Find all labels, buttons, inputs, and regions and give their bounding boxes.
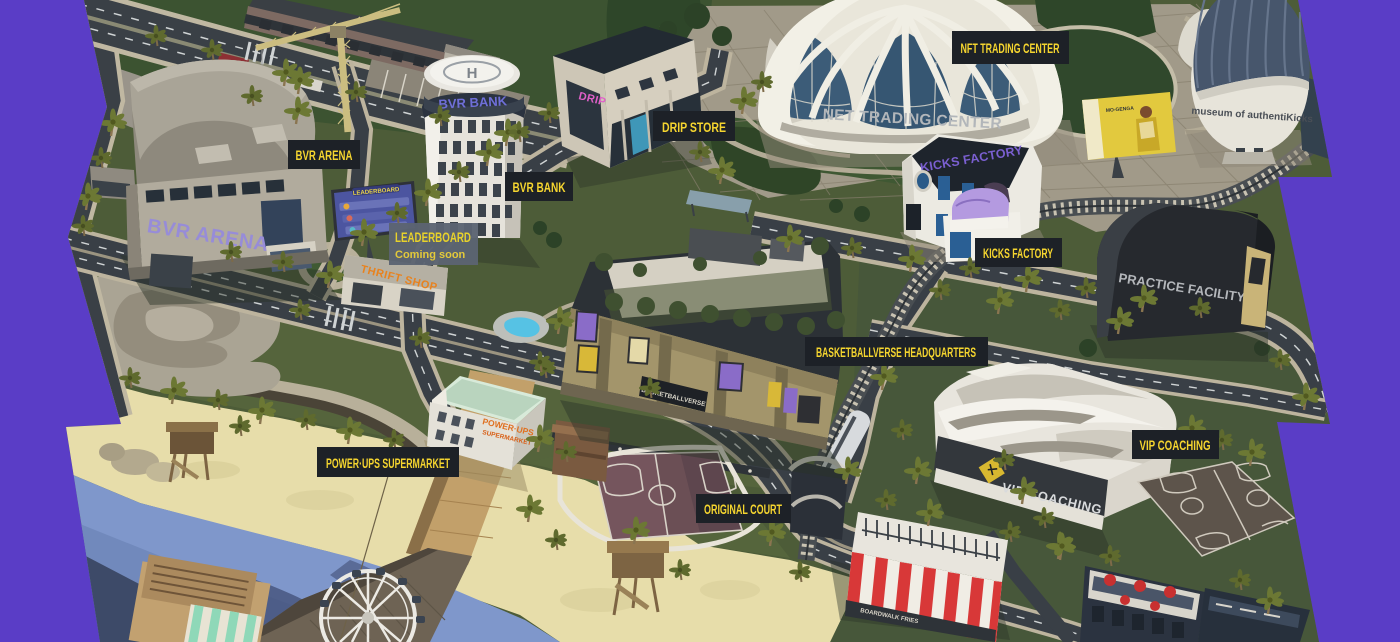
svg-text:POWER·UPS SUPERMARKET: POWER·UPS SUPERMARKET bbox=[326, 456, 450, 471]
svg-text:NFT TRADING CENTER: NFT TRADING CENTER bbox=[961, 40, 1060, 56]
svg-text:ORIGINAL COURT: ORIGINAL COURT bbox=[704, 502, 782, 517]
svg-text:LEADERBOARD: LEADERBOARD bbox=[395, 230, 471, 245]
svg-text:KICKS FACTORY: KICKS FACTORY bbox=[983, 246, 1053, 261]
svg-text:DRIP STORE: DRIP STORE bbox=[662, 120, 726, 135]
svg-text:H: H bbox=[467, 65, 478, 82]
svg-text:VIP COACHING: VIP COACHING bbox=[1140, 438, 1211, 453]
svg-text:BVR BANK: BVR BANK bbox=[513, 180, 566, 195]
svg-text:BASKETBALLVERSE HEADQUARTERS: BASKETBALLVERSE HEADQUARTERS bbox=[816, 345, 976, 360]
svg-text:Coming soon: Coming soon bbox=[395, 249, 466, 261]
svg-text:BVR ARENA: BVR ARENA bbox=[296, 148, 353, 163]
